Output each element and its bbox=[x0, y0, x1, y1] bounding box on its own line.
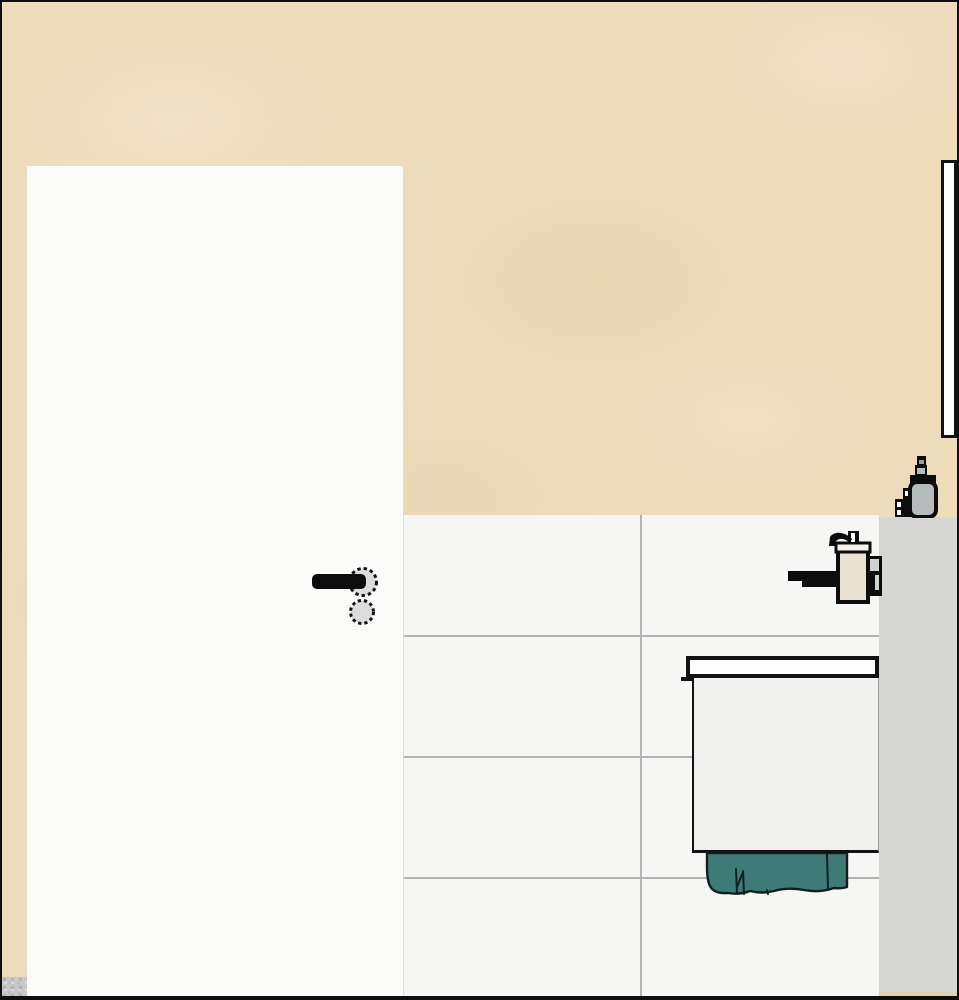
dispenser-holder-arm-icon bbox=[788, 571, 844, 587]
handle-lever-icon bbox=[312, 574, 366, 589]
vanity-cabinet[interactable] bbox=[692, 678, 879, 853]
towel-shape bbox=[707, 853, 847, 894]
floor-section-cut bbox=[2, 977, 27, 996]
hanging-towel[interactable] bbox=[701, 853, 853, 897]
partition-wall-section bbox=[879, 517, 957, 996]
soap-dispenser[interactable] bbox=[786, 530, 886, 606]
bathroom-elevation-scene bbox=[0, 0, 959, 1000]
tile-grout-horizontal bbox=[404, 635, 879, 637]
floor-edge-line bbox=[879, 992, 957, 996]
vanity-countertop[interactable] bbox=[686, 656, 879, 678]
dispenser-bottle-icon bbox=[836, 543, 870, 602]
handle-escutcheon-icon bbox=[351, 601, 374, 624]
mirror-edge-view[interactable] bbox=[941, 160, 957, 438]
bottle-group-icon bbox=[895, 456, 936, 517]
door-handle[interactable] bbox=[309, 562, 389, 628]
toiletry-bottles[interactable] bbox=[891, 455, 941, 518]
